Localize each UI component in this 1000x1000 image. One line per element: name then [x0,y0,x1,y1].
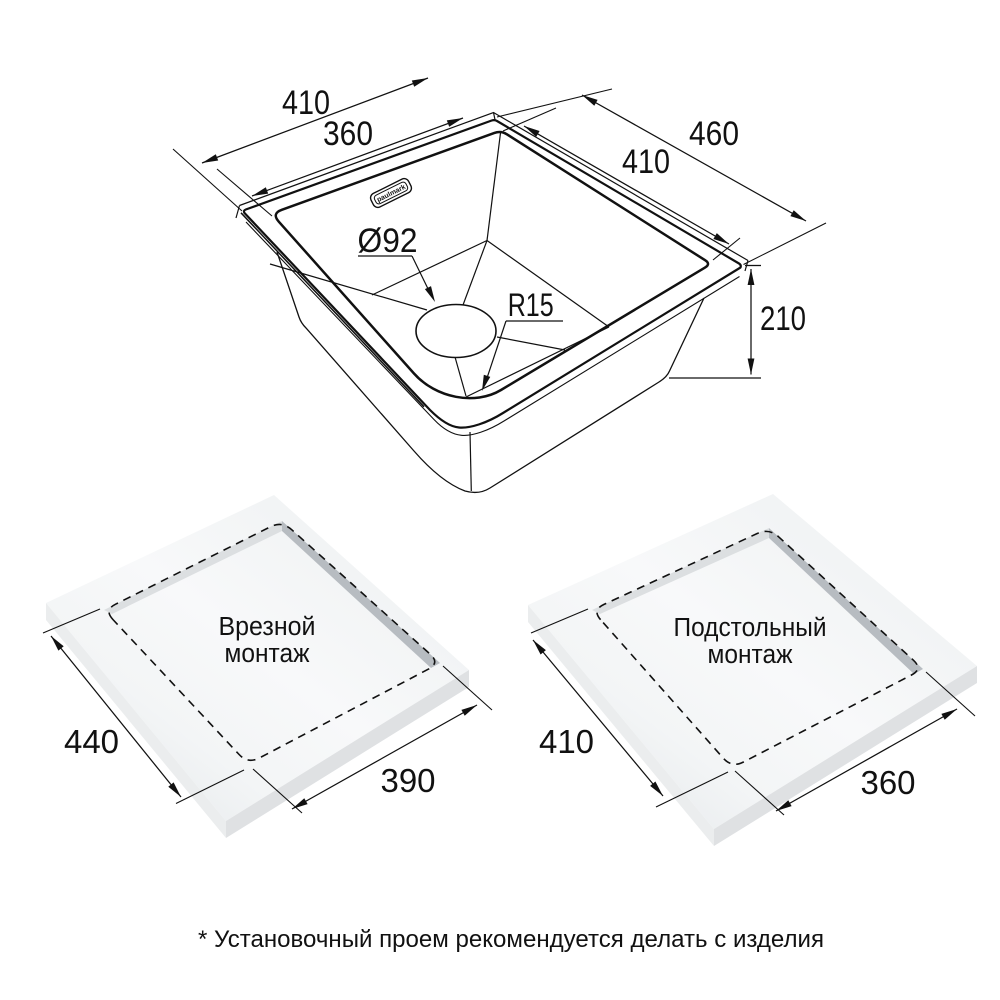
svg-text:410: 410 [622,143,670,181]
svg-text:360: 360 [323,115,373,153]
svg-text:390: 390 [380,762,435,799]
svg-text:210: 210 [760,300,806,338]
svg-text:Подстольный: Подстольный [674,614,827,642]
svg-text:монтаж: монтаж [708,641,793,669]
svg-text:410: 410 [539,723,594,760]
svg-text:360: 360 [860,764,915,801]
svg-text:440: 440 [64,723,119,760]
svg-text:Ø92: Ø92 [358,222,418,260]
svg-text:460: 460 [689,115,739,153]
svg-text:* Установочный проем рекоменду: * Установочный проем рекомендуется делат… [198,926,824,953]
svg-text:монтаж: монтаж [225,640,310,668]
svg-text:Врезной: Врезной [219,613,316,641]
svg-text:R15: R15 [508,287,554,323]
